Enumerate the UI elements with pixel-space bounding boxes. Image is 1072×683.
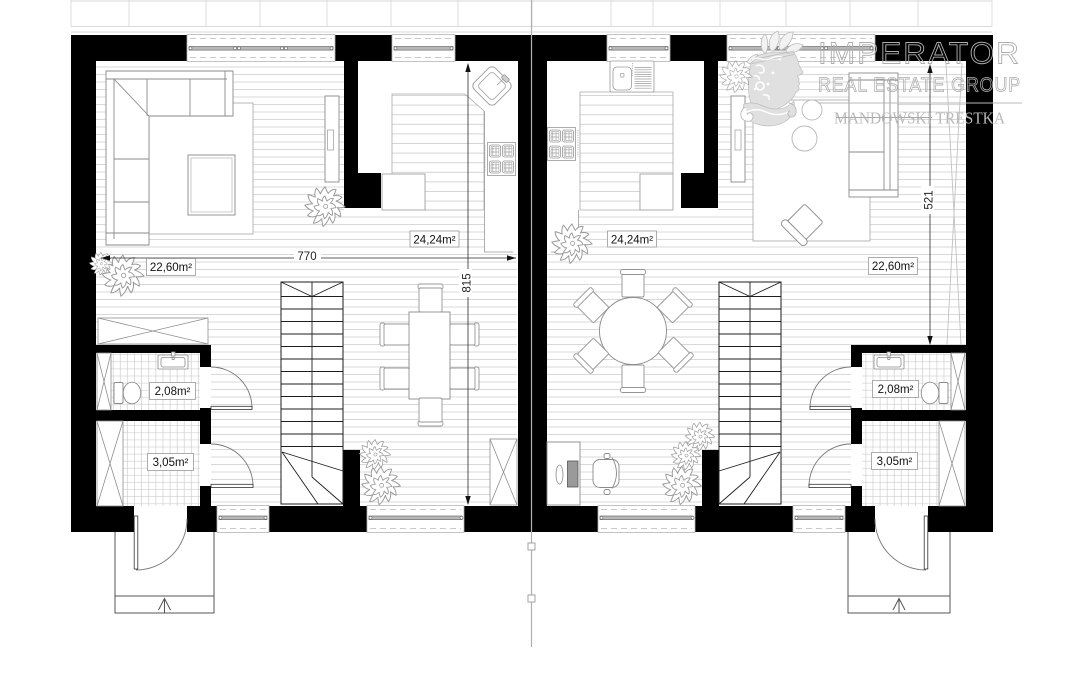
svg-text:521: 521 xyxy=(924,190,936,209)
svg-text:24,24m²: 24,24m² xyxy=(611,235,653,247)
svg-text:815: 815 xyxy=(462,273,474,292)
svg-text:22,60m²: 22,60m² xyxy=(150,262,192,274)
svg-text:3,05m²: 3,05m² xyxy=(877,456,913,468)
svg-text:REAL ESTATE GROUP: REAL ESTATE GROUP xyxy=(818,74,1021,97)
svg-text:3,05m²: 3,05m² xyxy=(153,457,189,469)
svg-text:2,08m²: 2,08m² xyxy=(155,386,191,398)
svg-text:MANDOWSKI TRESTKA: MANDOWSKI TRESTKA xyxy=(834,109,1005,128)
svg-text:2,08m²: 2,08m² xyxy=(878,384,914,396)
svg-text:24,24m²: 24,24m² xyxy=(413,235,455,247)
svg-text:770: 770 xyxy=(297,251,316,263)
svg-text:IMPERATOR: IMPERATOR xyxy=(818,36,1021,71)
svg-text:22,60m²: 22,60m² xyxy=(872,261,914,273)
